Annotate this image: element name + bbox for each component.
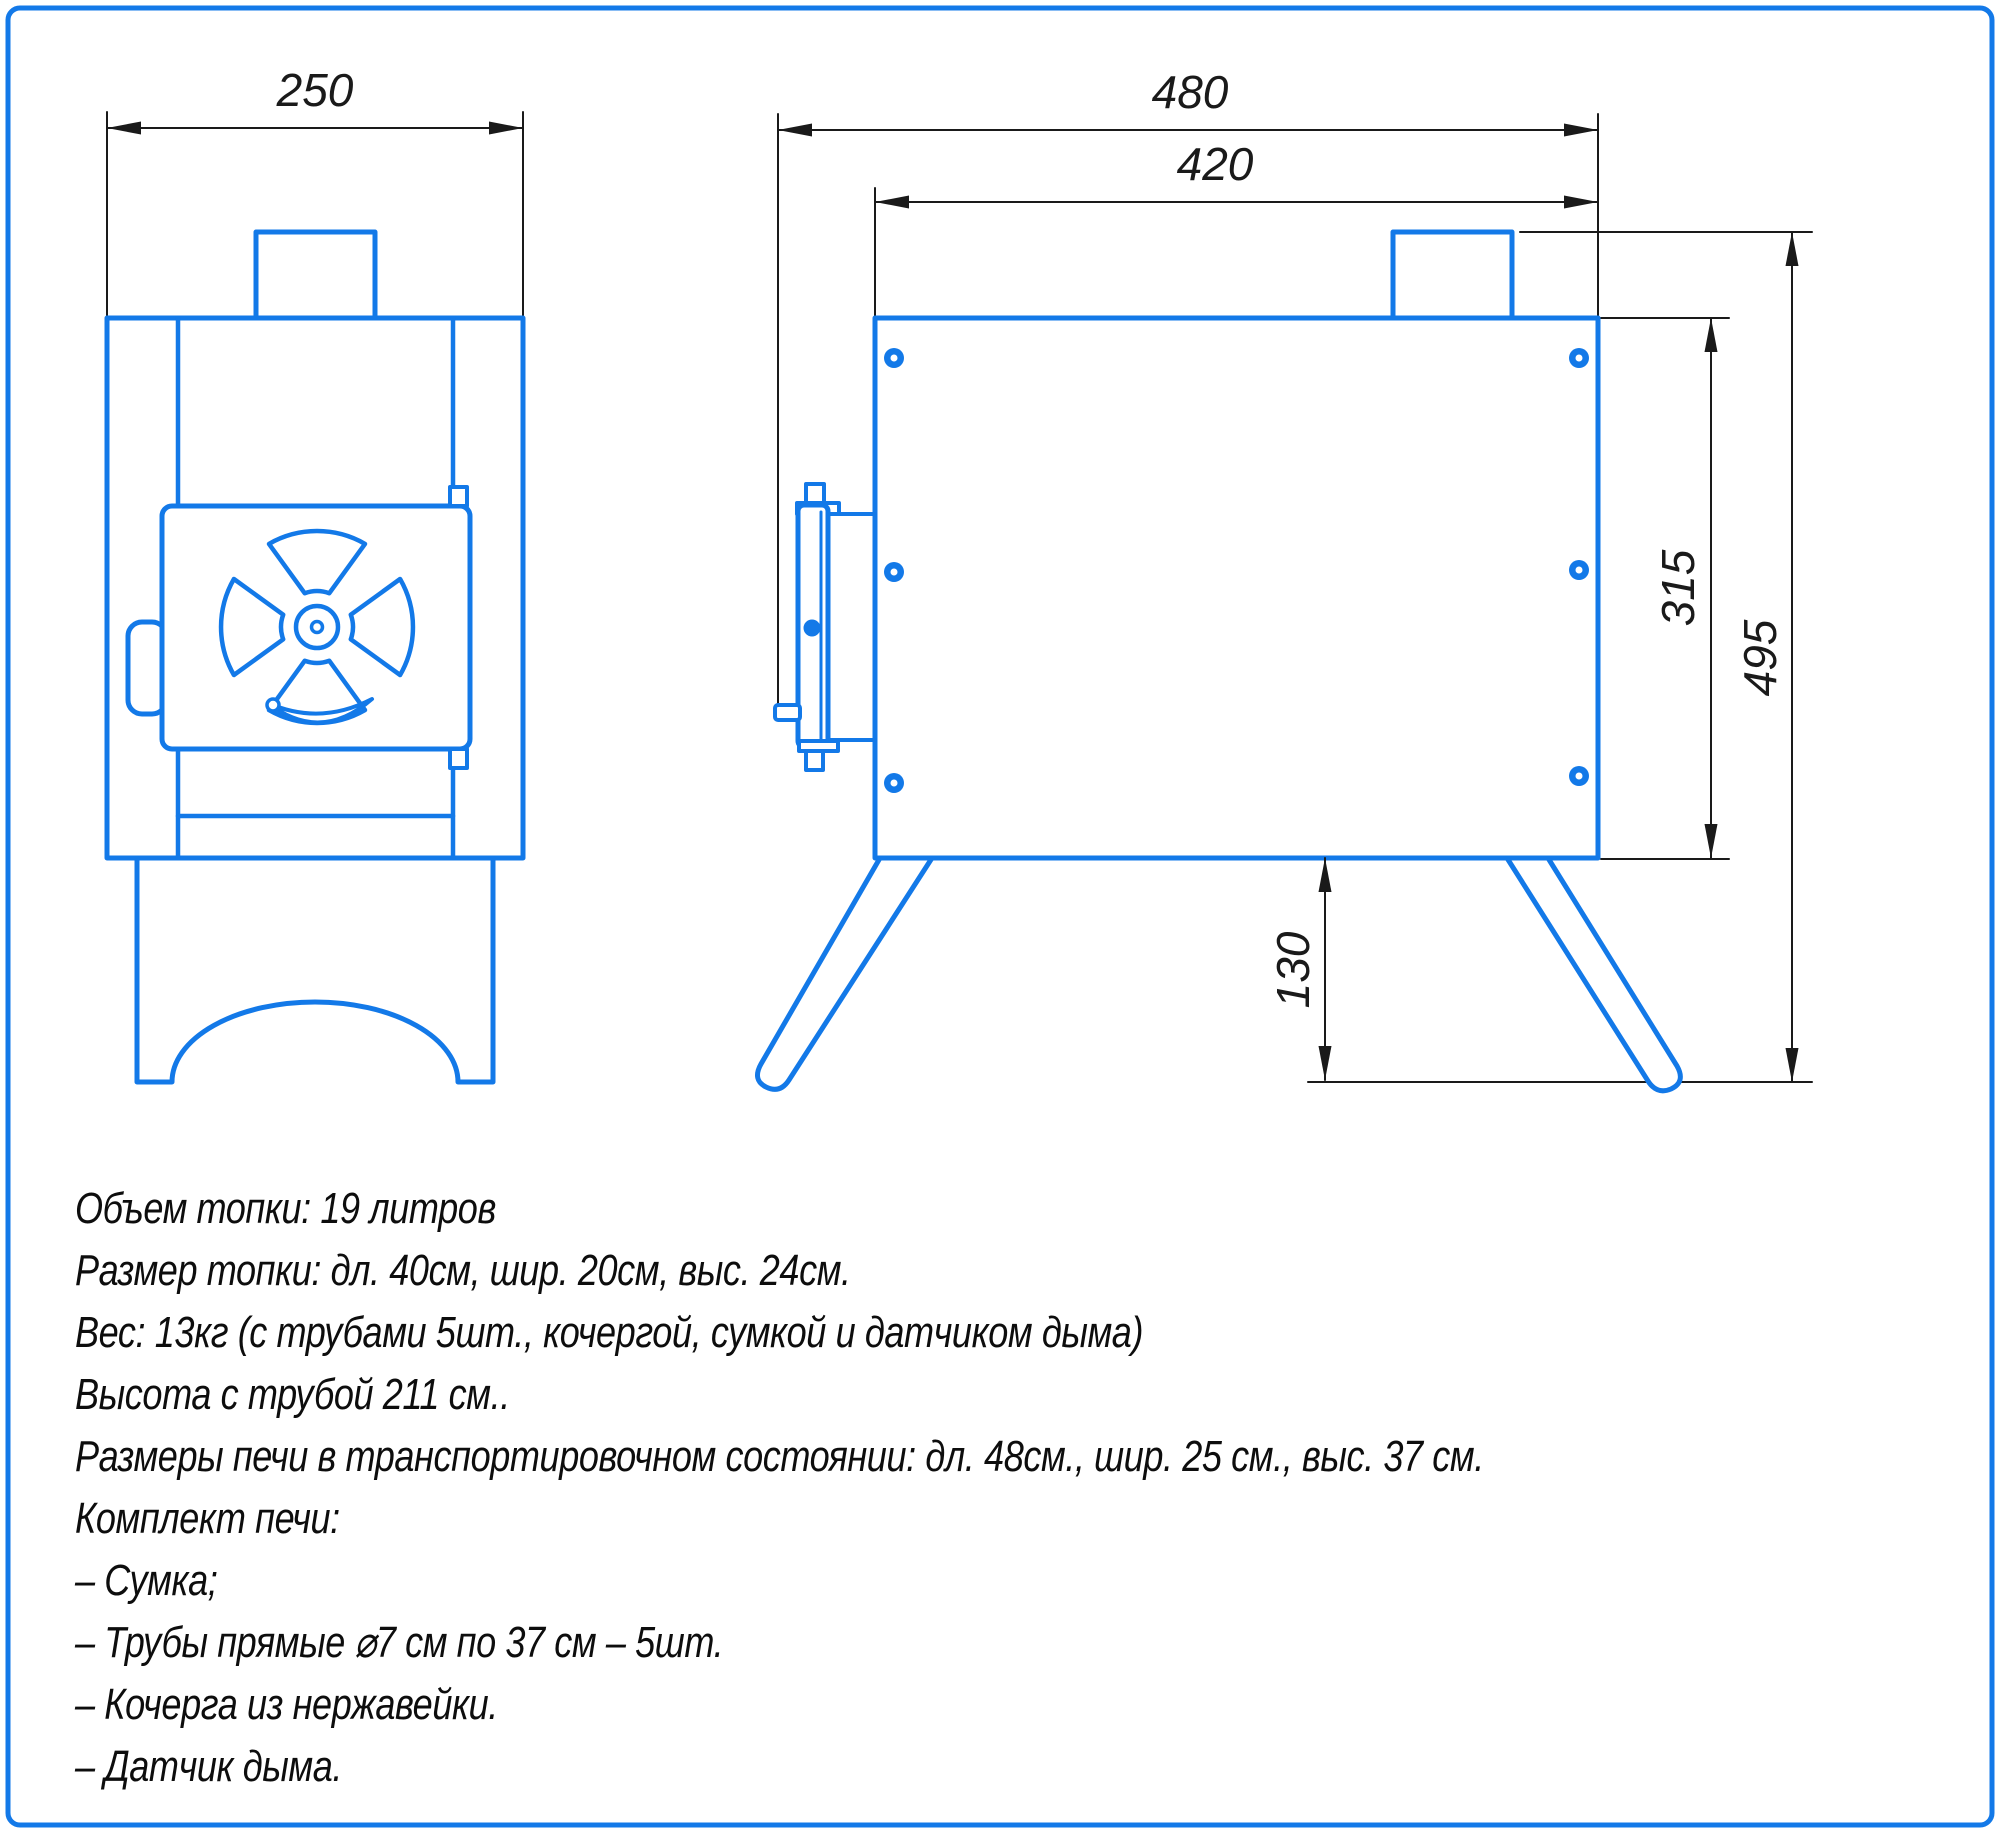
rivet xyxy=(884,348,904,368)
dim-body-height: 315 xyxy=(1652,318,1718,858)
dim-label-480: 480 xyxy=(1152,66,1229,118)
spec-line-height: Высота с трубой 211 см.. xyxy=(75,1366,1469,1428)
door-pivot xyxy=(804,620,821,637)
arrowhead-left-icon xyxy=(778,124,812,137)
arrowhead-left-icon xyxy=(107,122,141,135)
arrowhead-down-icon xyxy=(1705,824,1718,858)
front-chimney-stub xyxy=(256,232,375,318)
arrowhead-down-icon xyxy=(1786,1048,1799,1082)
spec-line-pipes: – Трубы прямые ⌀7 см по 37 см – 5шт. xyxy=(75,1614,1469,1676)
side-body xyxy=(875,318,1598,858)
spec-line-sensor: – Датчик дыма. xyxy=(75,1738,1469,1800)
spec-line-bag: – Сумка; xyxy=(75,1552,1469,1614)
spec-line-firebox: Размер топки: дл. 40см, шир. 20см, выс. … xyxy=(75,1242,1469,1304)
spec-line-transport: Размеры печи в транспортировочном состоя… xyxy=(75,1428,1469,1490)
rear-leg xyxy=(1507,858,1680,1091)
arrowhead-up-icon xyxy=(1705,318,1718,352)
front-view: 250 xyxy=(107,64,523,1082)
rivet xyxy=(1569,560,1589,580)
rivet xyxy=(1569,766,1589,786)
dim-body-length: 420 xyxy=(875,138,1598,209)
rivet xyxy=(1569,348,1589,368)
arrowhead-down-icon xyxy=(1319,1046,1332,1080)
dim-label-315: 315 xyxy=(1652,549,1704,626)
side-chimney-stub xyxy=(1393,232,1512,318)
arrowhead-right-icon xyxy=(489,122,523,135)
rivet xyxy=(884,562,904,582)
front-leg xyxy=(757,858,932,1089)
spec-line-poker: – Кочерга из нержавейки. xyxy=(75,1676,1469,1738)
dim-label-250: 250 xyxy=(276,64,354,116)
arrowhead-right-icon xyxy=(1564,196,1598,209)
front-stand xyxy=(137,858,493,1082)
spec-block: Объем топки: 19 литров Размер топки: дл.… xyxy=(75,1180,1469,1800)
dim-label-130: 130 xyxy=(1267,931,1319,1008)
damper-lever-pin xyxy=(267,699,279,711)
door-latch-bottom xyxy=(806,751,823,770)
drawing-page: 250 xyxy=(0,0,2000,1833)
front-extension-lines xyxy=(107,112,523,316)
arrowhead-up-icon xyxy=(1319,858,1332,892)
door-handle-profile xyxy=(775,705,800,720)
dim-overall-length: 480 xyxy=(778,66,1598,137)
dim-front-width: 250 xyxy=(107,64,523,135)
spec-line-volume: Объем топки: 19 литров xyxy=(75,1180,1469,1242)
arrowhead-left-icon xyxy=(875,196,909,209)
rosette-hub-pin xyxy=(312,622,323,633)
spec-line-kit: Комплект печи: xyxy=(75,1490,1469,1552)
side-view: 480 420 xyxy=(757,66,1812,1091)
dim-label-495: 495 xyxy=(1734,619,1786,696)
spec-line-weight: Вес: 13кг (с трубами 5шт., кочергой, сум… xyxy=(75,1304,1469,1366)
door-hinge-bottom xyxy=(450,749,467,768)
dim-leg-height: 130 xyxy=(1267,858,1332,1080)
dim-overall-height: 495 xyxy=(1734,232,1799,1082)
arrowhead-up-icon xyxy=(1786,232,1799,266)
dim-label-420: 420 xyxy=(1177,138,1254,190)
rivet xyxy=(884,773,904,793)
arrowhead-right-icon xyxy=(1564,124,1598,137)
door-profile xyxy=(775,484,875,770)
door-hinge-top xyxy=(450,487,467,506)
